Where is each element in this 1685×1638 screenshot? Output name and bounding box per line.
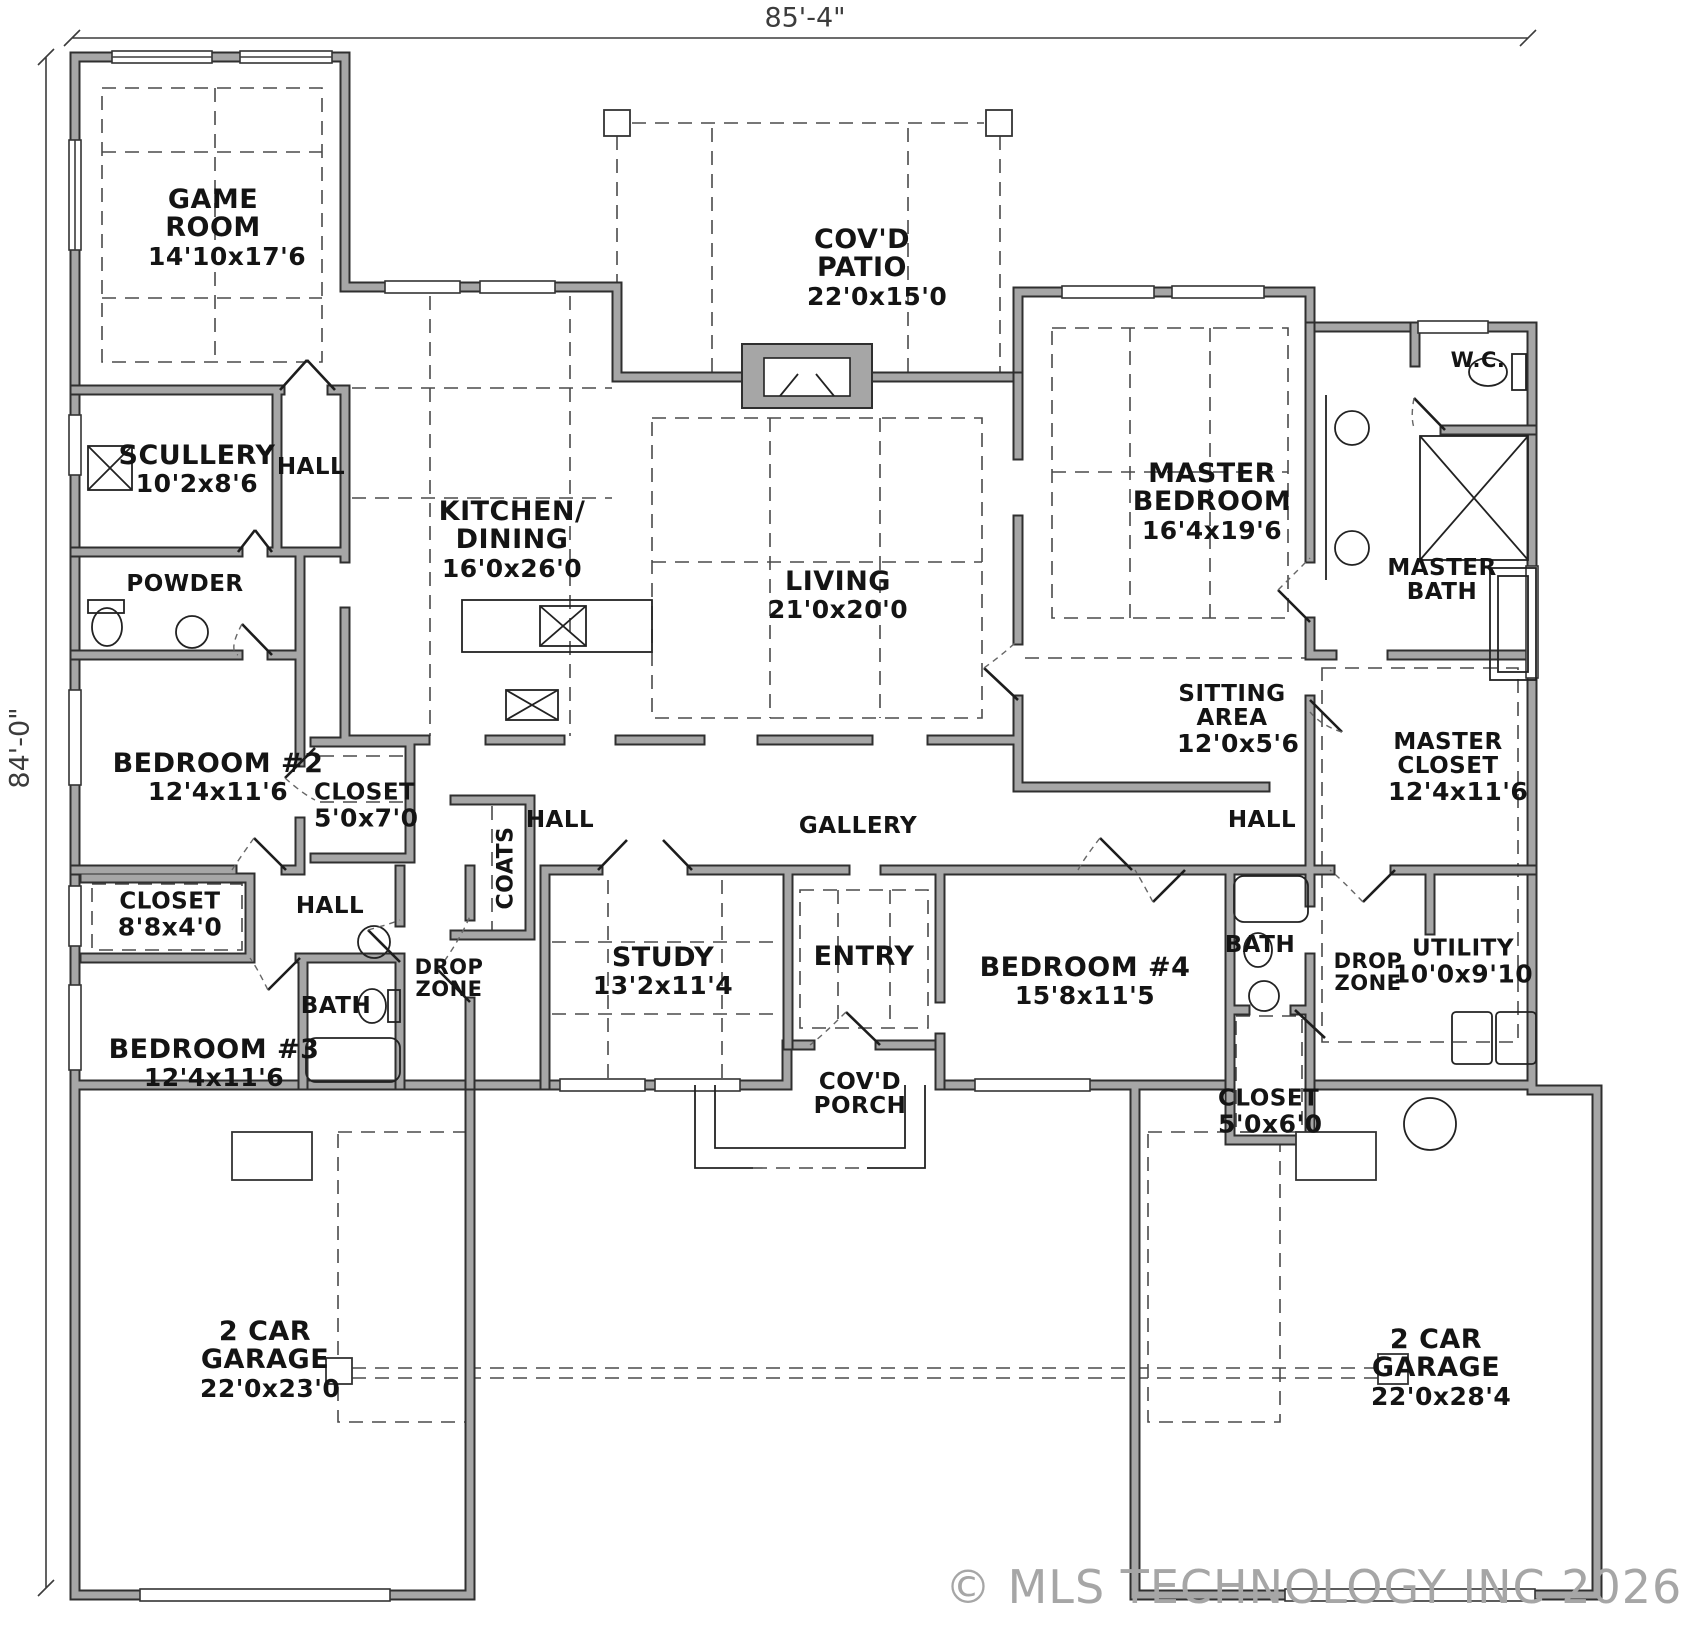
overall-height-dimension: 84'-0" [5, 707, 36, 788]
room-dims: 22'0x28'4 [1371, 1384, 1501, 1410]
room-name: CLOSET [115, 889, 225, 913]
room-label-master-closet: MASTER CLOSET12'4x11'6 [1388, 730, 1508, 806]
room-name: POWDER [126, 572, 243, 596]
room-name: MASTER BATH [1387, 556, 1497, 604]
powder-toilet-icon [88, 600, 124, 646]
room-dims: 12'4x11'6 [1388, 780, 1508, 806]
room-name: 2 CAR GARAGE [200, 1318, 330, 1375]
room-label-gallery: GALLERY [799, 814, 917, 838]
overall-width-dimension: 85'-4" [764, 3, 845, 34]
room-name: DROP ZONE [406, 956, 492, 1000]
room-name: HALL [296, 894, 364, 918]
room-name: SCULLERY [102, 442, 292, 470]
master-bath-fixtures [1326, 395, 1536, 680]
room-name: HALL [1228, 808, 1296, 832]
room-dims: 12'4x11'6 [99, 1066, 329, 1092]
room-name: CLOSET [314, 780, 414, 804]
room-label-hall-scullery: HALL [277, 455, 345, 479]
interior-walls [75, 327, 1532, 1085]
room-name: BEDROOM #4 [970, 954, 1200, 982]
room-dims: 8'8x4'0 [115, 914, 225, 940]
room-name: COV'D PORCH [810, 1070, 910, 1118]
room-name: HALL [277, 455, 345, 479]
room-label-coats: COATS [494, 827, 517, 910]
room-name: BEDROOM #2 [103, 750, 333, 778]
room-label-closet-bedroom2: CLOSET5'0x7'0 [314, 780, 414, 831]
floor-plan: 85'-4" 84'-0" GAME ROOM14'10x17'6 SCULLE… [0, 0, 1685, 1638]
room-label-sitting-area: SITTING AREA12'0x5'6 [1177, 682, 1287, 758]
room-name: MASTER BEDROOM [1132, 460, 1292, 517]
room-label-covd-patio: COV'D PATIO22'0x15'0 [807, 226, 917, 310]
room-dims: 16'4x19'6 [1132, 518, 1292, 544]
room-dims: 15'8x11'5 [970, 984, 1200, 1010]
room-name: ENTRY [814, 943, 915, 971]
room-name: BATH [301, 994, 371, 1018]
room-label-closet-bedroom4: CLOSET5'0x6'0 [1218, 1086, 1318, 1137]
room-label-garage-left: 2 CAR GARAGE22'0x23'0 [200, 1318, 330, 1402]
room-dims: 16'0x26'0 [432, 556, 592, 582]
room-dims: 22'0x23'0 [200, 1376, 330, 1402]
powder-sink-icon [176, 616, 208, 648]
room-label-hall-left: HALL [296, 894, 364, 918]
room-name: SITTING AREA [1177, 682, 1287, 730]
room-dims: 13'2x11'4 [563, 974, 763, 1000]
room-dims: 22'0x15'0 [807, 284, 917, 310]
room-label-living: LIVING21'0x20'0 [738, 568, 938, 624]
room-label-game-room: GAME ROOM14'10x17'6 [148, 186, 278, 270]
room-label-entry: ENTRY [814, 943, 915, 971]
room-label-master-bedroom: MASTER BEDROOM16'4x19'6 [1132, 460, 1292, 544]
room-name: STUDY [563, 944, 763, 972]
fireplace [742, 344, 872, 408]
room-label-covd-porch: COV'D PORCH [810, 1070, 910, 1118]
room-name: BEDROOM #3 [99, 1036, 329, 1064]
room-label-kitchen-dining: KITCHEN/ DINING16'0x26'0 [432, 498, 592, 582]
room-name: CLOSET [1218, 1086, 1318, 1110]
room-dims: 21'0x20'0 [738, 598, 938, 624]
room-label-master-bath: MASTER BATH [1387, 556, 1497, 604]
room-dims: 10'2x8'6 [102, 472, 292, 498]
room-name: BATH [1225, 933, 1295, 957]
room-label-wc: W.C. [1451, 349, 1506, 371]
room-dims: 12'4x11'6 [103, 780, 333, 806]
room-name: HALL [526, 808, 594, 832]
room-name: 2 CAR GARAGE [1371, 1326, 1501, 1383]
room-name: UTILITY [1383, 936, 1543, 960]
room-label-bedroom-4: BEDROOM #415'8x11'5 [970, 954, 1200, 1010]
room-name: KITCHEN/ DINING [432, 498, 592, 555]
room-dims: 14'10x17'6 [148, 244, 278, 270]
room-label-bedroom-3: BEDROOM #312'4x11'6 [99, 1036, 329, 1092]
copyright-watermark: © MLS TECHNOLOGY INC 2026 [945, 1560, 1683, 1614]
room-label-study: STUDY13'2x11'4 [563, 944, 763, 1000]
kitchen-range-icon [506, 690, 558, 720]
room-name: GALLERY [799, 814, 917, 838]
room-name: GAME ROOM [148, 186, 278, 243]
room-label-powder: POWDER [126, 572, 243, 596]
room-name: LIVING [738, 568, 938, 596]
room-label-hall-center: HALL [526, 808, 594, 832]
room-label-hall-right: HALL [1228, 808, 1296, 832]
room-label-bedroom-2: BEDROOM #212'4x11'6 [103, 750, 333, 806]
room-dims: 12'0x5'6 [1177, 732, 1287, 758]
room-dims: 10'0x9'10 [1383, 961, 1543, 987]
room-name: MASTER CLOSET [1388, 730, 1508, 778]
room-name: W.C. [1451, 349, 1506, 371]
garage-detail-boxes [232, 1132, 1408, 1384]
room-label-closet-hall: CLOSET8'8x4'0 [115, 889, 225, 940]
room-label-scullery: SCULLERY10'2x8'6 [102, 442, 292, 498]
kitchen-island-icon [462, 600, 652, 652]
room-label-bath-right: BATH [1225, 933, 1295, 957]
room-label-utility: UTILITY10'0x9'10 [1383, 936, 1543, 987]
room-name: COV'D PATIO [807, 226, 917, 283]
room-label-drop-zone-left: DROP ZONE [406, 956, 492, 1000]
room-label-garage-right: 2 CAR GARAGE22'0x28'4 [1371, 1326, 1501, 1410]
room-label-bath-left: BATH [301, 994, 371, 1018]
room-dims: 5'0x7'0 [314, 805, 414, 831]
room-dims: 5'0x6'0 [1218, 1111, 1318, 1137]
room-name: COATS [494, 827, 517, 910]
